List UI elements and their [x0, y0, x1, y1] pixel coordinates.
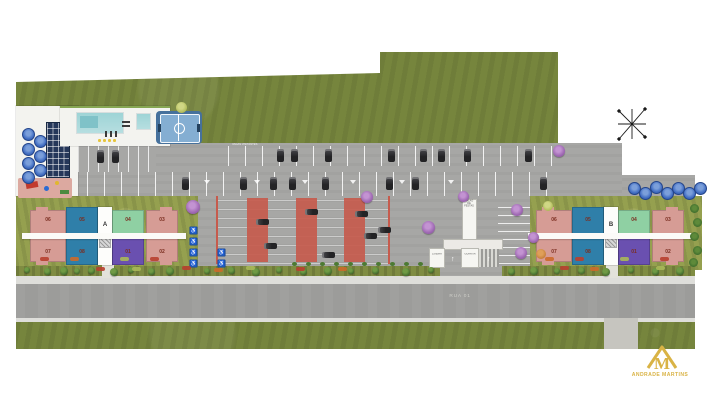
- building-b: 0605040307080102B: [536, 207, 684, 265]
- gate-canopy: [444, 240, 502, 249]
- covered-parking-edge-right: [388, 196, 390, 264]
- unit-number: 05: [572, 218, 604, 223]
- unit-number: 01: [112, 250, 144, 255]
- gatehouse-label: GUARITA: [464, 253, 475, 256]
- covered-parking-row: [344, 198, 365, 262]
- elevator-shaft: [606, 238, 616, 247]
- unit-wing: [36, 207, 48, 211]
- goal: [197, 124, 200, 132]
- sidewalk-north: [16, 276, 695, 284]
- unit-number: 08: [572, 250, 604, 255]
- unit-number: 04: [618, 218, 650, 223]
- playground-item: [55, 181, 59, 185]
- unit-number: 07: [536, 250, 572, 255]
- covered-parking-row: [247, 198, 268, 262]
- unit-wing: [542, 261, 554, 265]
- elevator-shaft: [100, 238, 110, 247]
- building-a: 0605040307080102A: [30, 207, 178, 265]
- unit-number: 01: [618, 250, 650, 255]
- logo-name: ANDRADE MARTINS: [623, 372, 696, 377]
- sun-loungers: [122, 121, 130, 123]
- unit-wing: [666, 261, 678, 265]
- unit-number: 07: [30, 250, 66, 255]
- bench: [105, 131, 107, 137]
- court-center-circle: [174, 123, 185, 134]
- party-hall-building: SALÃO DE FESTAS: [463, 200, 476, 240]
- unit-wing: [542, 207, 554, 211]
- party-hall-label-2: DE FESTAS: [464, 203, 474, 208]
- trash-depot: LIXEIRA: [430, 249, 444, 267]
- parking-stalls-row1: [228, 146, 562, 166]
- goal: [158, 124, 161, 132]
- covered-parking-edge-left: [216, 196, 218, 264]
- kids-pool: [136, 113, 151, 130]
- logo-house-icon: M: [644, 342, 680, 372]
- entry-arrow-icon: ↑: [487, 256, 491, 263]
- trash-depot-label: LIXEIRA: [432, 253, 442, 256]
- parking-stalls-east: [498, 202, 532, 264]
- unit-wing: [160, 261, 172, 265]
- unit-wing: [160, 207, 172, 211]
- unit-number: 03: [652, 218, 684, 223]
- bench: [115, 131, 117, 137]
- parking-lot-deck-side: [78, 144, 156, 172]
- street: [16, 284, 695, 318]
- svg-text:M: M: [654, 354, 670, 372]
- unit-number: 02: [146, 250, 178, 255]
- building-label: B: [604, 222, 618, 229]
- unit-wing: [666, 207, 678, 211]
- unit-number: 02: [652, 250, 684, 255]
- walkway: [528, 233, 692, 239]
- parking-painted-text: VAGAS VISITANTES: [232, 143, 257, 146]
- unit-number: 04: [112, 218, 144, 223]
- street-name-label: RUA 01: [442, 294, 477, 299]
- swimming-pool-lane: [80, 116, 98, 128]
- playground-item: [60, 190, 69, 194]
- unit-number: 05: [66, 218, 98, 223]
- playground-item: [44, 186, 49, 191]
- unit-number: 08: [66, 250, 98, 255]
- covered-parking-row: [296, 198, 317, 262]
- entry-arrow-icon: ↑: [451, 256, 455, 263]
- unit-wing: [36, 261, 48, 265]
- grass-field-south: [16, 322, 604, 349]
- unit-number: 03: [146, 218, 178, 223]
- bench: [110, 131, 112, 137]
- walkway: [22, 233, 186, 239]
- gatehouse: GUARITA: [462, 249, 478, 267]
- unit-number: 06: [30, 218, 66, 223]
- sun-loungers: [122, 125, 130, 127]
- side-street: [604, 318, 638, 349]
- parking-stalls-row2: [70, 172, 562, 196]
- compass-icon: [612, 104, 652, 144]
- unit-number: 06: [536, 218, 572, 223]
- site-plan: RUA 01 SALÃO DE FESTAS LIXEIRA GUARITA ↑…: [0, 0, 711, 400]
- building-label: A: [98, 222, 112, 229]
- blue-planter: [694, 182, 707, 195]
